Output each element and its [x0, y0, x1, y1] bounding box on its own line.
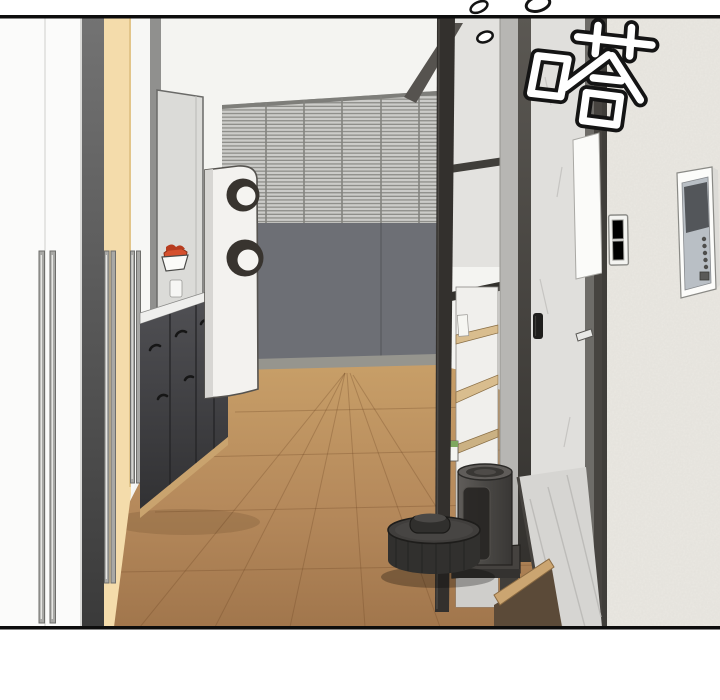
closet-door-dark	[82, 17, 104, 627]
shelf-item-card	[457, 315, 468, 337]
wall-recessed-panel	[573, 133, 602, 279]
lower-wall	[253, 223, 437, 371]
speaker-tower	[205, 166, 264, 398]
intercom-panel	[677, 167, 720, 298]
intercom-screen	[684, 182, 709, 233]
panel-border-top	[0, 15, 720, 19]
light-switch	[609, 215, 629, 265]
panel-border-bottom	[0, 626, 720, 630]
webtoon-panel-page: 嗒	[0, 0, 720, 700]
counter-jar	[170, 280, 182, 297]
panel-illustration	[0, 0, 720, 700]
door-handle-recessed	[533, 313, 543, 339]
